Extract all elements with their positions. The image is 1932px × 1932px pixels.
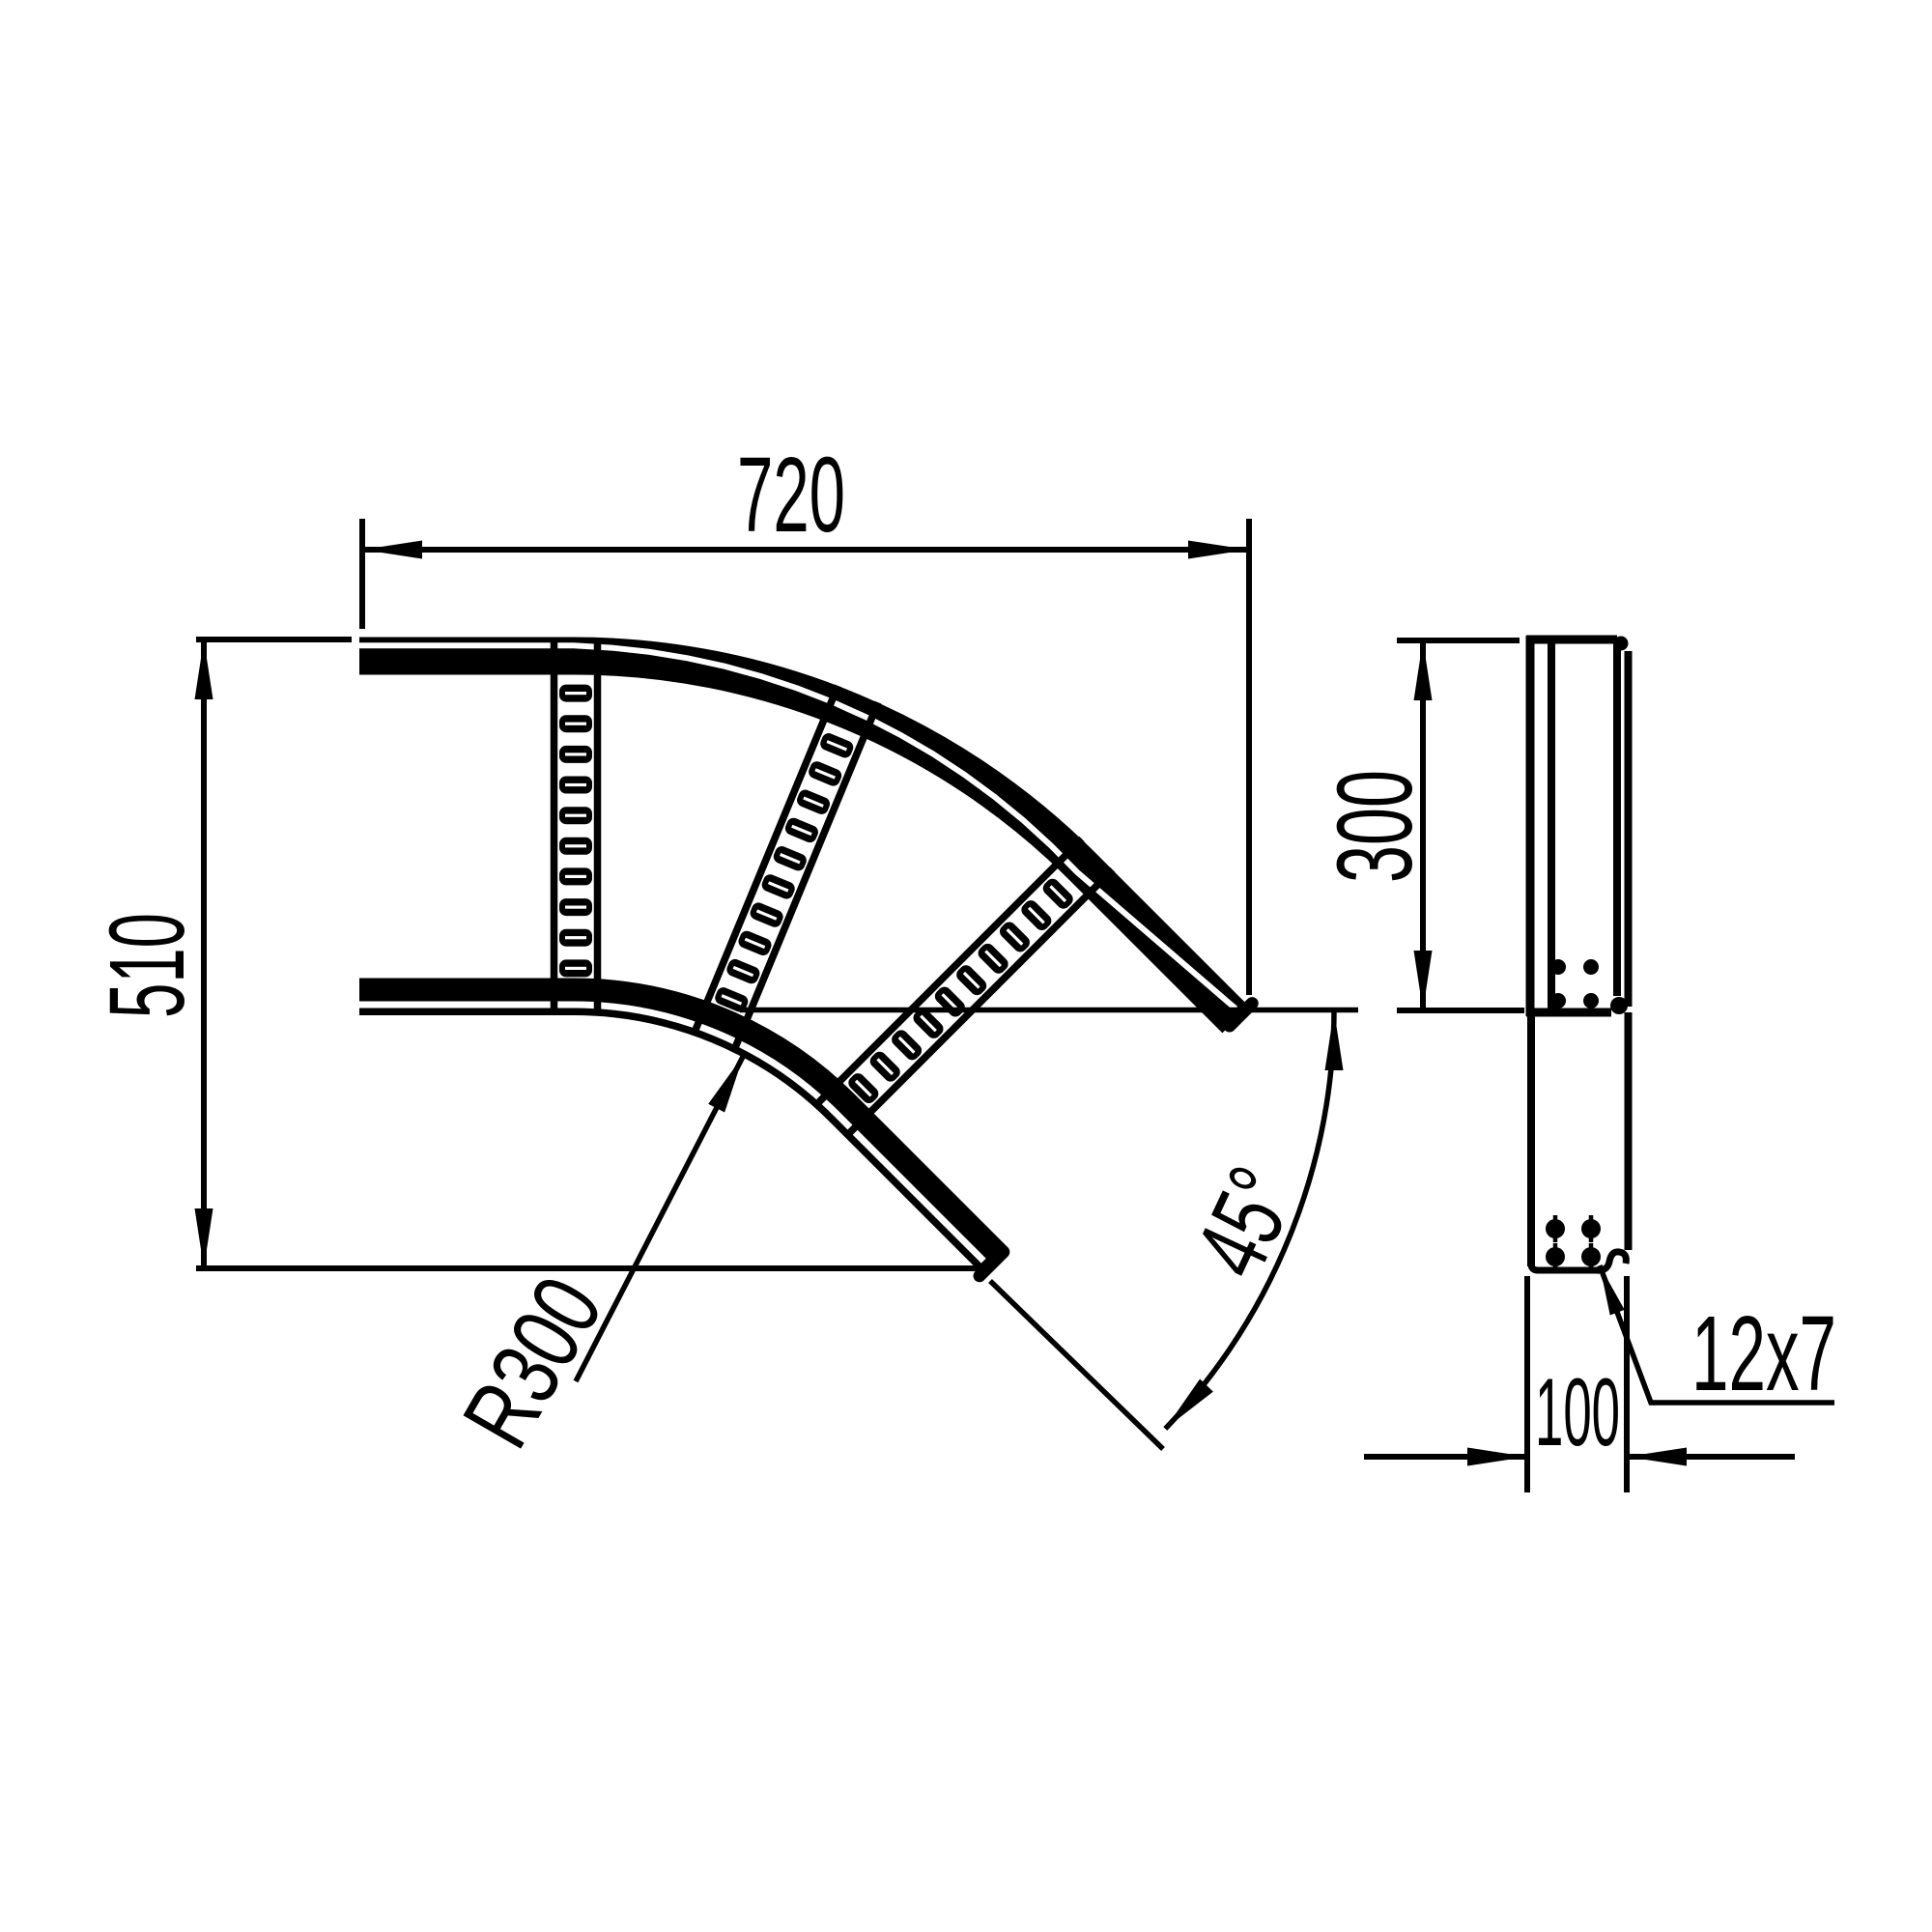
svg-text:720: 720 — [737, 436, 845, 554]
svg-text:12x7: 12x7 — [1691, 1294, 1836, 1413]
svg-text:510: 510 — [88, 913, 207, 1018]
svg-text:100: 100 — [1535, 1358, 1620, 1465]
svg-text:300: 300 — [1316, 770, 1435, 883]
